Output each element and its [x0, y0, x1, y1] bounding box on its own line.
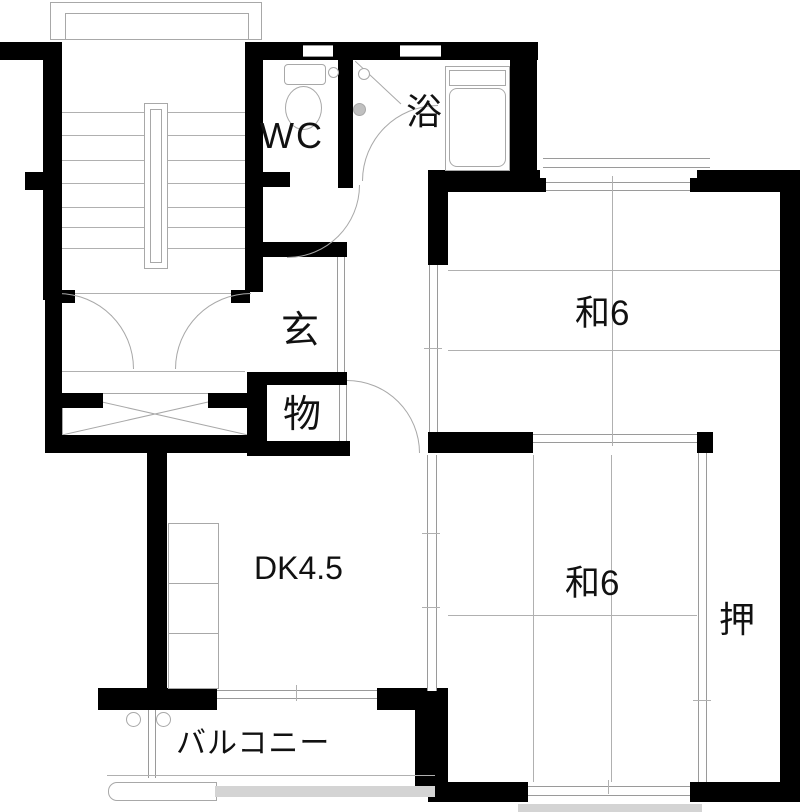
wall	[690, 782, 800, 802]
wc-paper-holder	[328, 67, 339, 78]
window	[543, 158, 710, 168]
window	[400, 45, 441, 57]
wall	[263, 172, 290, 187]
wall	[690, 178, 700, 192]
wall	[45, 292, 62, 453]
kitchen-counter	[168, 633, 219, 689]
wall	[25, 172, 43, 190]
front-door-arc	[175, 293, 251, 369]
genkan-step	[337, 257, 345, 372]
wall	[697, 170, 780, 192]
window	[546, 182, 690, 191]
wall	[147, 452, 167, 693]
stair-railing-inner	[150, 109, 162, 263]
hall-door-line	[62, 293, 245, 294]
kitchen-counter	[168, 583, 219, 635]
room-label-tatami-lower: 和6	[565, 566, 619, 601]
wall	[208, 393, 248, 408]
wall	[697, 432, 713, 453]
balcony-edge	[107, 775, 435, 776]
balcony-railing-bar	[215, 786, 435, 797]
bathtub-ledge	[449, 70, 506, 86]
wall	[415, 691, 448, 786]
balcony-divider	[148, 710, 156, 778]
wall	[338, 58, 353, 188]
room-label-dk: DK4.5	[254, 552, 343, 584]
fusuma-door	[533, 434, 697, 443]
wall	[98, 688, 217, 710]
closet-door-tick	[693, 700, 711, 701]
wall	[510, 58, 537, 188]
fusuma-door	[427, 455, 437, 691]
room-label-bath: 浴	[406, 94, 442, 130]
fusuma-tick	[422, 533, 440, 534]
room-label-closet: 押	[719, 602, 755, 638]
wall	[428, 432, 533, 453]
wall	[263, 441, 350, 456]
bathtub-inner	[449, 88, 506, 167]
bath-drain	[358, 68, 370, 80]
tatami-line	[533, 455, 534, 782]
balcony-railing-bar	[518, 804, 702, 812]
toilet-tank	[284, 64, 326, 85]
room-label-entrance: 玄	[281, 312, 319, 350]
storage-door	[339, 385, 347, 441]
wall	[535, 178, 546, 192]
window-tick	[608, 780, 609, 794]
wc-door-arc	[287, 185, 360, 258]
tatami-line	[448, 615, 697, 616]
tatami-line	[611, 455, 612, 782]
tatami-line	[448, 270, 780, 271]
bath-door-knob	[353, 103, 366, 116]
wall	[428, 782, 528, 802]
wall	[245, 42, 263, 292]
storage-door-arc	[347, 380, 420, 453]
balcony-drain	[126, 712, 141, 727]
balcony-drain	[156, 712, 171, 727]
balcony-railing	[108, 782, 217, 801]
fusuma-tick	[612, 430, 613, 446]
room-label-wc: WC	[260, 118, 324, 154]
neighbor-door-arc	[58, 293, 134, 369]
porch-line	[62, 371, 245, 372]
window	[528, 786, 690, 796]
room-label-tatami-upper: 和6	[575, 296, 629, 331]
closet-sliding-door	[698, 453, 707, 782]
tatami-line	[448, 350, 780, 351]
wall	[45, 435, 267, 453]
sliding-door-tick	[424, 348, 442, 349]
kitchen-counter	[168, 523, 219, 585]
door-tick	[296, 685, 297, 701]
balcony-sliding-door	[217, 690, 377, 699]
wall	[428, 170, 448, 265]
wall	[245, 42, 538, 60]
floor-plan: WC 浴 玄 物 和6 和6 押 DK4.5 バルコニー	[0, 0, 800, 812]
fusuma-tick	[422, 607, 440, 608]
wall	[780, 170, 800, 802]
window	[303, 45, 333, 57]
room-label-storage: 物	[283, 396, 321, 434]
stair-landing-inner	[65, 13, 249, 40]
room-label-balcony: バルコニー	[176, 729, 330, 759]
wall	[43, 42, 62, 300]
wall	[62, 393, 103, 408]
